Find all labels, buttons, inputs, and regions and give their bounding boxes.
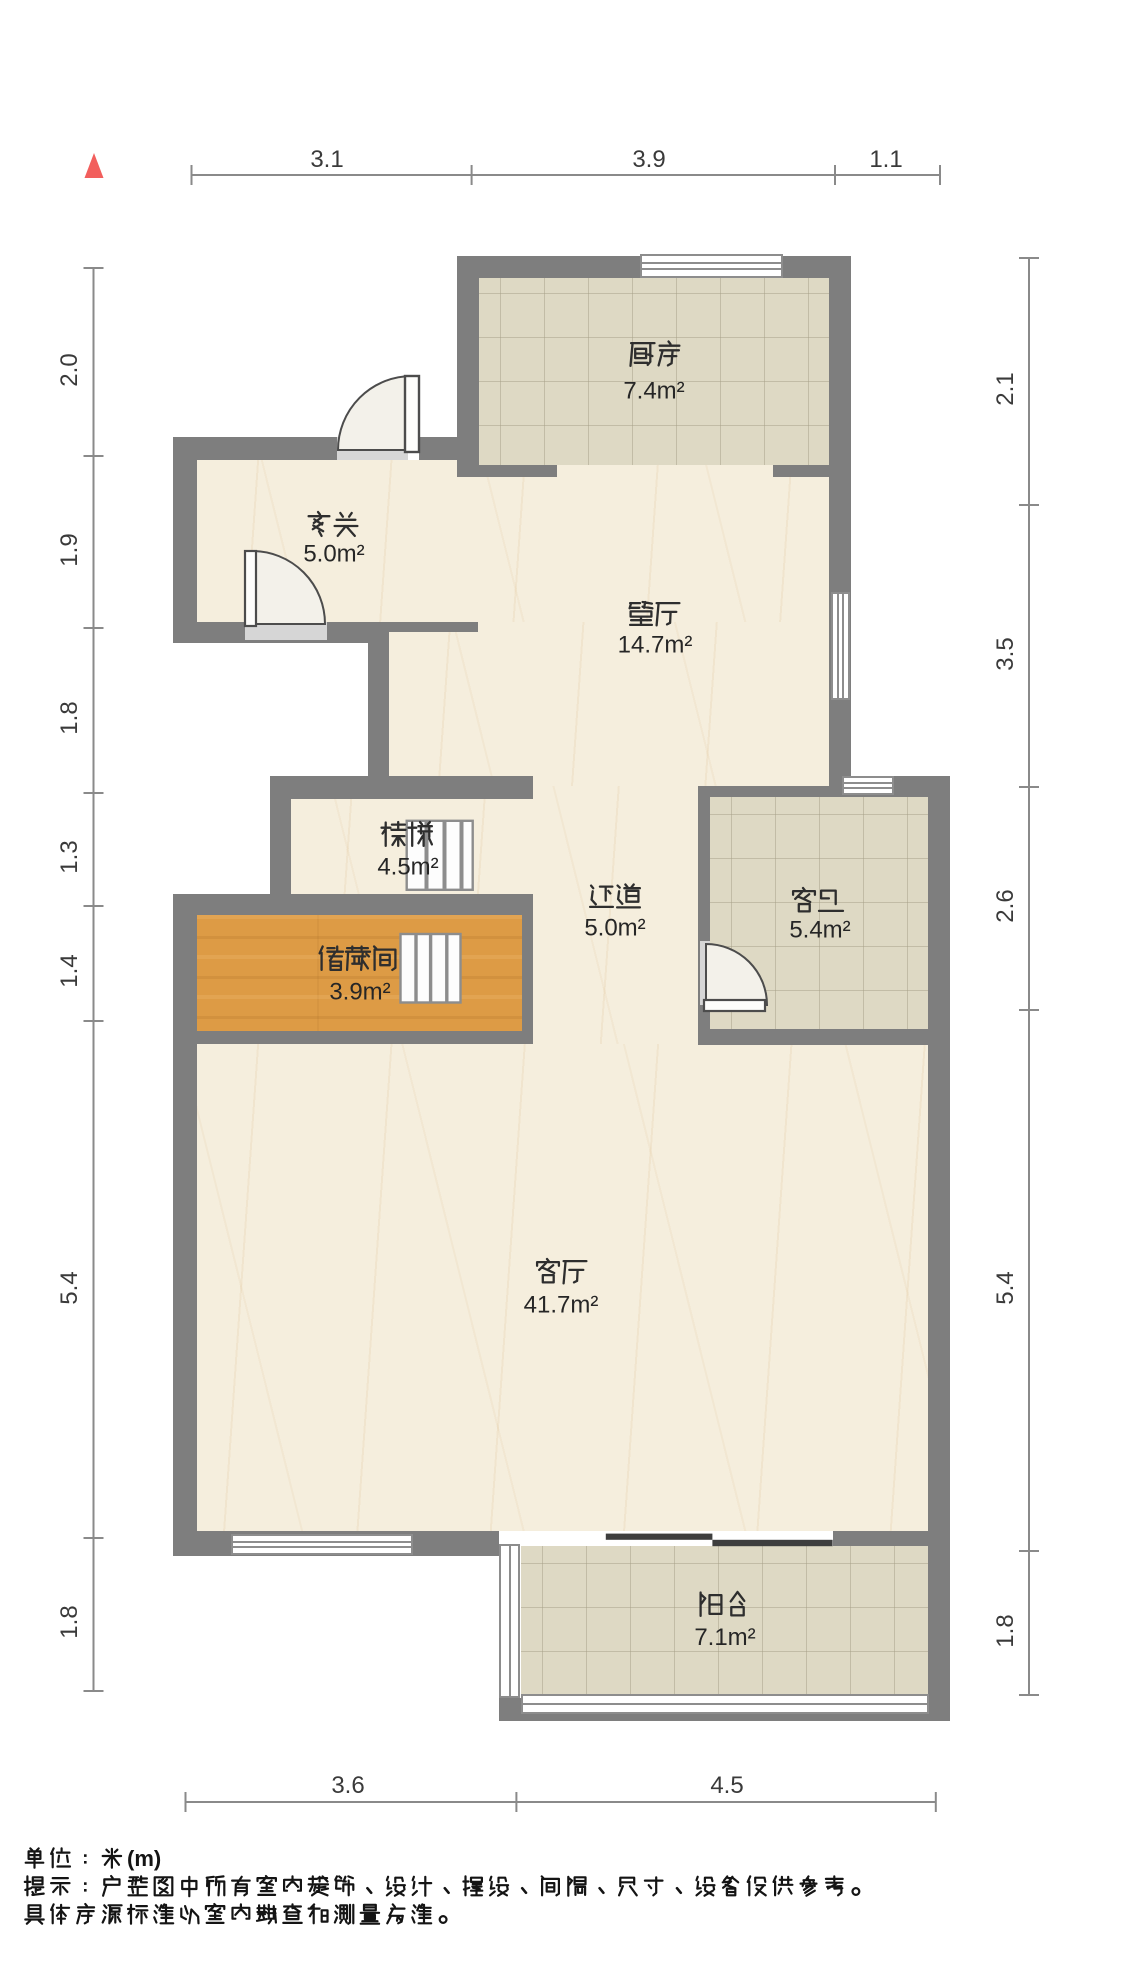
- svg-text:1.8: 1.8: [56, 701, 83, 734]
- svg-text:3.1: 3.1: [310, 146, 343, 173]
- svg-text:5.4m²: 5.4m²: [789, 917, 850, 944]
- svg-text:2.0: 2.0: [56, 353, 83, 386]
- svg-text:5.4: 5.4: [56, 1271, 83, 1304]
- svg-text:3.9: 3.9: [632, 146, 665, 173]
- svg-text:7.1m²: 7.1m²: [694, 1624, 755, 1651]
- svg-text:1.8: 1.8: [992, 1614, 1019, 1647]
- svg-text:3.5: 3.5: [992, 637, 1019, 670]
- svg-text:3.6: 3.6: [331, 1772, 364, 1799]
- svg-text:5.4: 5.4: [992, 1271, 1019, 1304]
- svg-text:4.5: 4.5: [710, 1772, 743, 1799]
- svg-text:3.9m²: 3.9m²: [329, 979, 390, 1006]
- svg-text:(m): (m): [127, 1846, 161, 1871]
- svg-text:2.1: 2.1: [992, 372, 1019, 405]
- svg-text:7.4m²: 7.4m²: [623, 378, 684, 405]
- svg-text:4.5m²: 4.5m²: [377, 854, 438, 881]
- svg-text:1.9: 1.9: [56, 533, 83, 566]
- svg-text:2.6: 2.6: [992, 889, 1019, 922]
- svg-text:1.1: 1.1: [869, 146, 902, 173]
- svg-text:14.7m²: 14.7m²: [618, 632, 693, 659]
- svg-text:1.3: 1.3: [56, 840, 83, 873]
- svg-text:1.8: 1.8: [56, 1605, 83, 1638]
- svg-text:41.7m²: 41.7m²: [524, 1292, 599, 1319]
- svg-text:5.0m²: 5.0m²: [584, 915, 645, 942]
- svg-text:5.0m²: 5.0m²: [303, 541, 364, 568]
- svg-text:1.4: 1.4: [56, 954, 83, 987]
